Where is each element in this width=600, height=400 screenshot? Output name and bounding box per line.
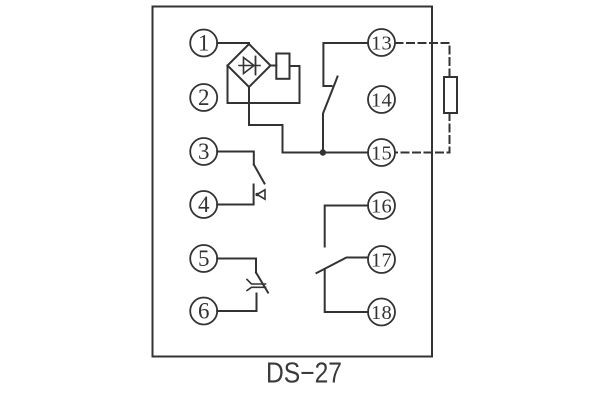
svg-text:13: 13	[371, 33, 392, 55]
svg-text:17: 17	[371, 250, 392, 272]
svg-text:14: 14	[371, 90, 392, 112]
svg-text:15: 15	[371, 143, 392, 165]
svg-text:3: 3	[198, 139, 210, 164]
svg-text:16: 16	[371, 196, 392, 218]
svg-text:2: 2	[198, 85, 210, 110]
svg-text:18: 18	[371, 302, 392, 324]
svg-text:5: 5	[198, 246, 210, 271]
svg-text:1: 1	[198, 31, 210, 56]
svg-text:6: 6	[198, 299, 210, 324]
svg-text:4: 4	[198, 192, 210, 217]
svg-text:DS−27: DS−27	[266, 357, 342, 389]
